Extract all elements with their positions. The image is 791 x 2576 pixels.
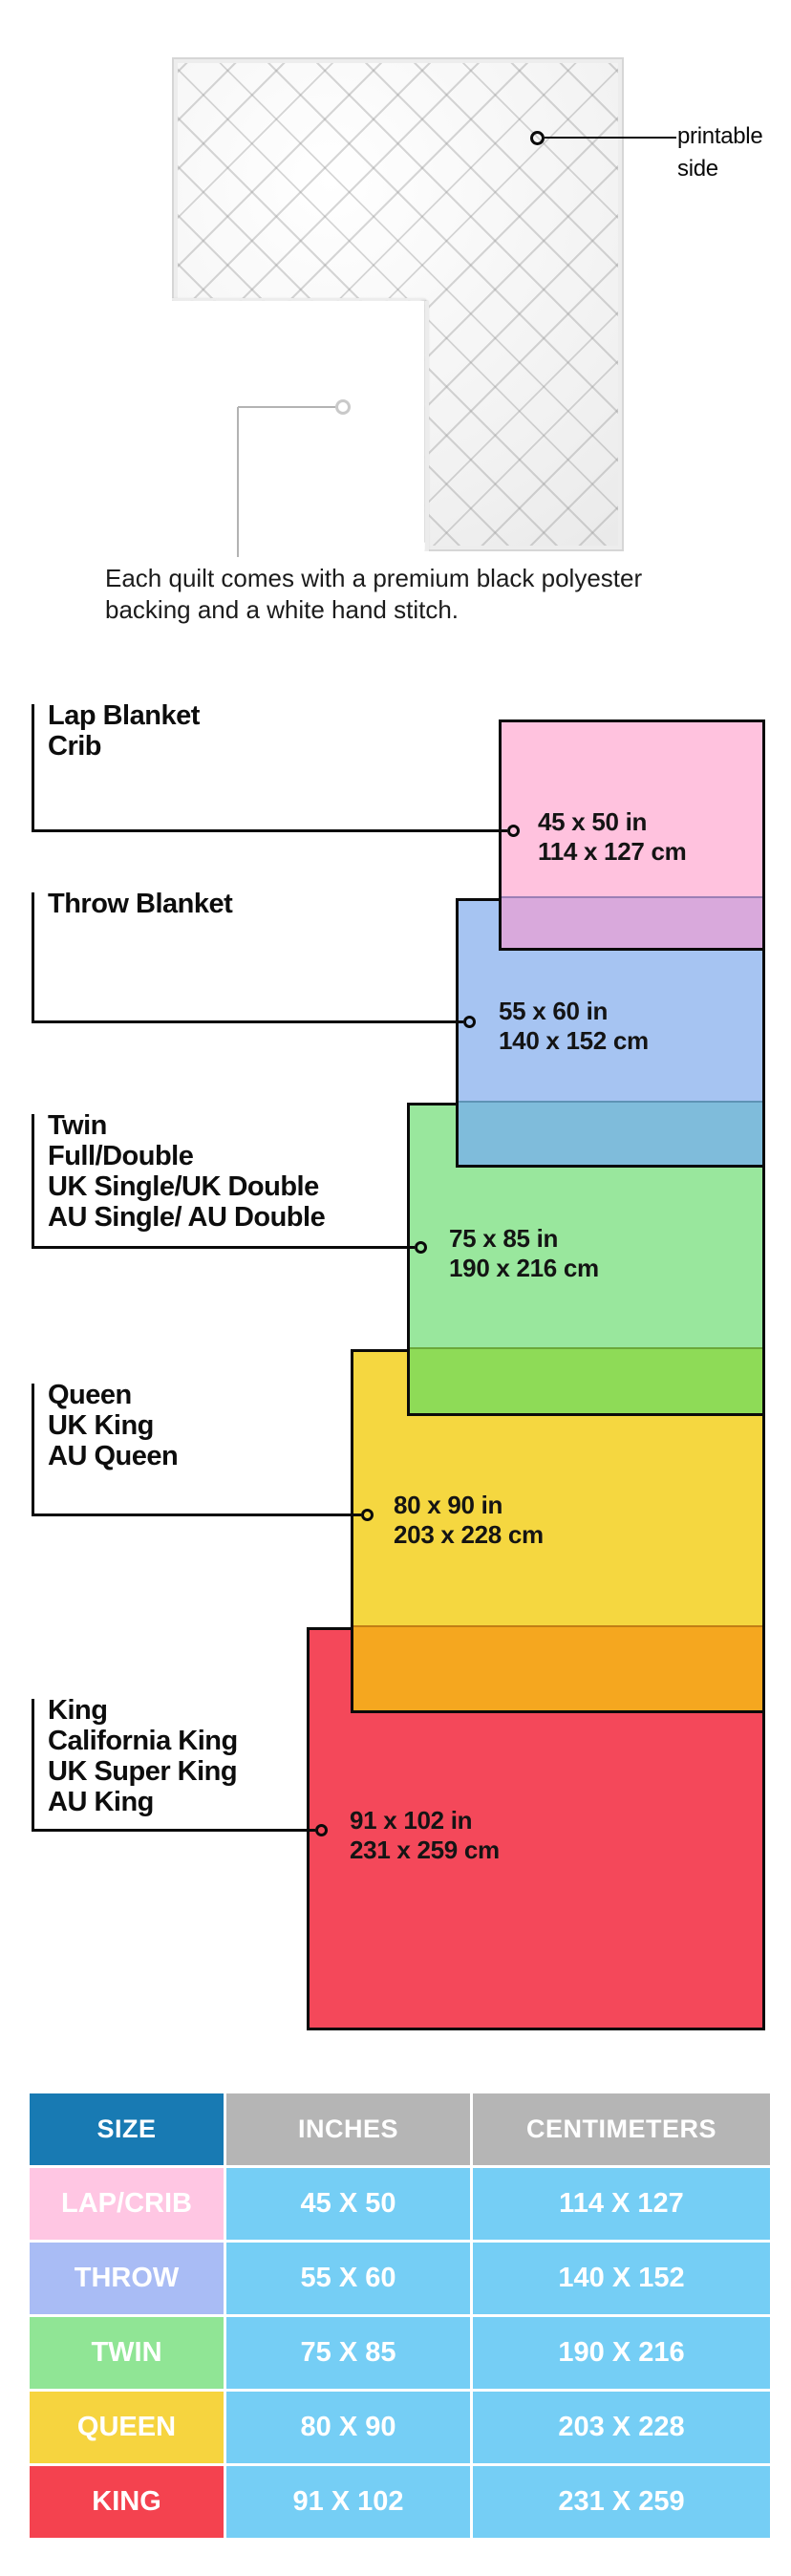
connector-queen-horizontal xyxy=(32,1513,361,1516)
quilt-black-backing-fold xyxy=(172,301,425,551)
size-label-line: Full/Double xyxy=(48,1141,325,1171)
size-note-centimeters: 231 x 259 cm xyxy=(350,1835,500,1865)
size-note-king: 91 x 102 in 231 x 259 cm xyxy=(350,1806,500,1865)
connector-king-horizontal xyxy=(32,1829,315,1832)
connector-throw-horizontal xyxy=(32,1020,463,1023)
size-note-centimeters: 114 x 127 cm xyxy=(538,837,686,867)
table-cell-centimeters: 190 X 216 xyxy=(473,2317,770,2389)
quilt-photo xyxy=(172,57,624,551)
connector-lap-vertical xyxy=(32,704,34,831)
quilt-caption-line2: backing and a white hand stitch. xyxy=(105,594,642,626)
connector-twin-marker-icon xyxy=(415,1241,427,1254)
size-note-inches: 91 x 102 in xyxy=(350,1806,500,1835)
size-note-throw: 55 x 60 in 140 x 152 cm xyxy=(499,997,649,1056)
connector-twin-horizontal xyxy=(32,1246,415,1249)
size-label-line: Twin xyxy=(48,1110,325,1141)
size-label-line: UK Single/UK Double xyxy=(48,1171,325,1202)
quilt-binding-horizontal xyxy=(172,298,425,305)
size-label-lap-crib: Lap Blanket Crib xyxy=(48,700,200,762)
size-note-twin: 75 x 85 in 190 x 216 cm xyxy=(449,1224,599,1283)
size-note-queen: 80 x 90 in 203 x 228 cm xyxy=(394,1491,544,1550)
backing-callout-line-horizontal xyxy=(238,406,335,408)
size-label-king: King California King UK Super King AU Ki… xyxy=(48,1695,238,1817)
table-cell-centimeters: 203 X 228 xyxy=(473,2392,770,2463)
quilt-binding-vertical xyxy=(422,301,429,551)
size-rect-lap-overlap-band xyxy=(502,896,762,948)
connector-throw-marker-icon xyxy=(463,1016,476,1028)
size-table: SIZE INCHES CENTIMETERS LAP/CRIB 45 X 50… xyxy=(30,2093,770,2538)
size-note-inches: 75 x 85 in xyxy=(449,1224,599,1254)
table-cell-centimeters: 114 X 127 xyxy=(473,2168,770,2240)
connector-throw-vertical xyxy=(32,892,34,1023)
table-row-label: KING xyxy=(30,2466,224,2538)
size-note-centimeters: 203 x 228 cm xyxy=(394,1520,544,1550)
size-label-line: UK King xyxy=(48,1410,178,1441)
printable-side-marker-icon xyxy=(530,131,545,145)
table-row-label: LAP/CRIB xyxy=(30,2168,224,2240)
table-row-label: THROW xyxy=(30,2243,224,2314)
quilt-size-infographic: printable side Each quilt comes with a p… xyxy=(0,0,791,2576)
size-label-line: UK Super King xyxy=(48,1756,238,1787)
size-note-centimeters: 190 x 216 cm xyxy=(449,1254,599,1283)
table-header-centimeters: CENTIMETERS xyxy=(473,2093,770,2165)
table-cell-inches: 80 X 90 xyxy=(226,2392,470,2463)
size-label-line: Throw Blanket xyxy=(48,889,232,919)
table-header-size: SIZE xyxy=(30,2093,224,2165)
size-label-line: AU Single/ AU Double xyxy=(48,1202,325,1233)
size-rect-throw-overlap-band xyxy=(459,1101,762,1165)
table-cell-centimeters: 140 X 152 xyxy=(473,2243,770,2314)
connector-king-marker-icon xyxy=(315,1824,328,1836)
table-row-label: QUEEN xyxy=(30,2392,224,2463)
size-note-inches: 45 x 50 in xyxy=(538,807,686,837)
size-label-line: King xyxy=(48,1695,238,1726)
quilt-caption-line1: Each quilt comes with a premium black po… xyxy=(105,563,642,594)
connector-queen-vertical xyxy=(32,1384,34,1516)
table-cell-inches: 91 X 102 xyxy=(226,2466,470,2538)
size-note-centimeters: 140 x 152 cm xyxy=(499,1026,649,1056)
connector-queen-marker-icon xyxy=(361,1509,374,1521)
quilt-caption: Each quilt comes with a premium black po… xyxy=(105,563,642,626)
size-label-line: Crib xyxy=(48,731,200,762)
size-label-throw: Throw Blanket xyxy=(48,889,232,919)
backing-callout-line-vertical xyxy=(237,407,239,557)
size-label-queen: Queen UK King AU Queen xyxy=(48,1380,178,1471)
connector-lap-marker-icon xyxy=(507,825,520,837)
size-label-line: AU King xyxy=(48,1787,238,1817)
table-row-label: TWIN xyxy=(30,2317,224,2389)
connector-twin-vertical xyxy=(32,1114,34,1249)
connector-king-vertical xyxy=(32,1699,34,1832)
size-note-lap-crib: 45 x 50 in 114 x 127 cm xyxy=(538,807,686,867)
size-label-line: AU Queen xyxy=(48,1441,178,1471)
size-label-line: Queen xyxy=(48,1380,178,1410)
connector-lap-horizontal xyxy=(32,829,507,832)
printable-side-label: printable side xyxy=(677,120,762,185)
table-cell-inches: 55 X 60 xyxy=(226,2243,470,2314)
printable-side-label-line2: side xyxy=(677,153,762,185)
size-rect-queen-overlap-band xyxy=(353,1625,762,1710)
table-cell-centimeters: 231 X 259 xyxy=(473,2466,770,2538)
table-cell-inches: 45 X 50 xyxy=(226,2168,470,2240)
printable-side-callout-line xyxy=(545,137,676,139)
table-cell-inches: 75 X 85 xyxy=(226,2317,470,2389)
size-rect-twin-overlap-band xyxy=(410,1347,762,1413)
size-label-twin: Twin Full/Double UK Single/UK Double AU … xyxy=(48,1110,325,1233)
printable-side-label-line1: printable xyxy=(677,120,762,153)
table-header-inches: INCHES xyxy=(226,2093,470,2165)
size-label-line: Lap Blanket xyxy=(48,700,200,731)
size-note-inches: 55 x 60 in xyxy=(499,997,649,1026)
backing-marker-icon xyxy=(335,399,351,415)
size-note-inches: 80 x 90 in xyxy=(394,1491,544,1520)
size-label-line: California King xyxy=(48,1726,238,1756)
